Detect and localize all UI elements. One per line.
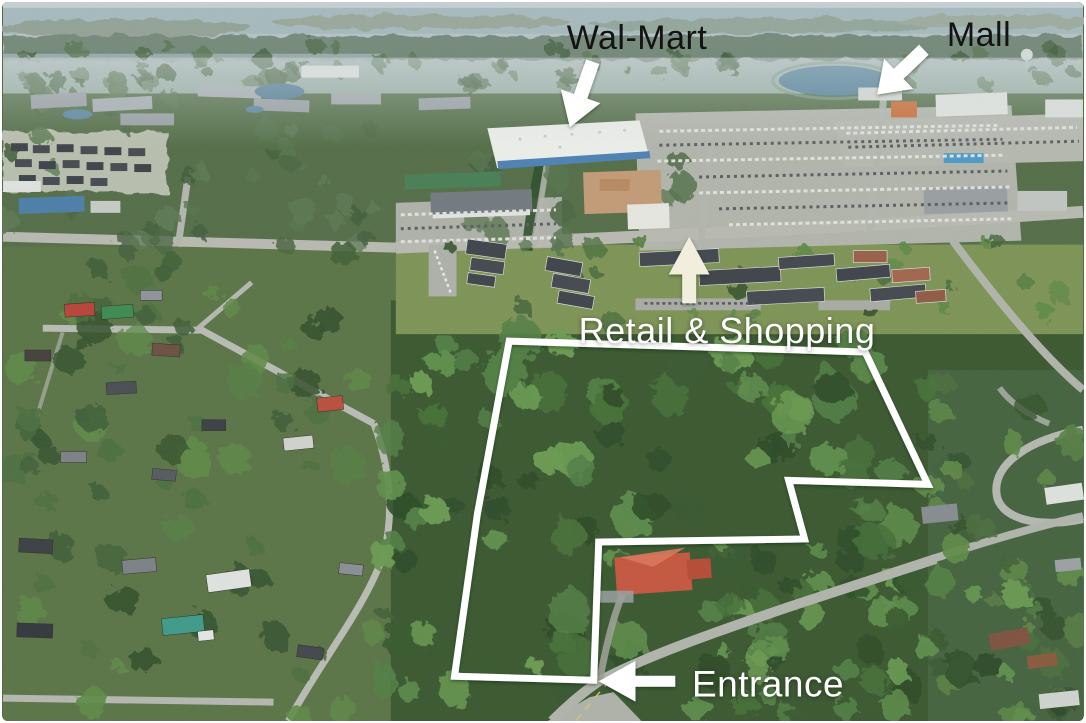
mall-label: Mall xyxy=(947,18,1011,52)
walmart-label: Wal-Mart xyxy=(567,21,708,55)
aerial-photo: Wal-Mart Mall Retail & Shopping Entrance xyxy=(0,0,1086,723)
retail-shopping-label: Retail & Shopping xyxy=(579,313,876,349)
aerial-scene xyxy=(2,2,1084,721)
entrance-label: Entrance xyxy=(692,666,844,703)
photo-grain xyxy=(3,2,1083,721)
